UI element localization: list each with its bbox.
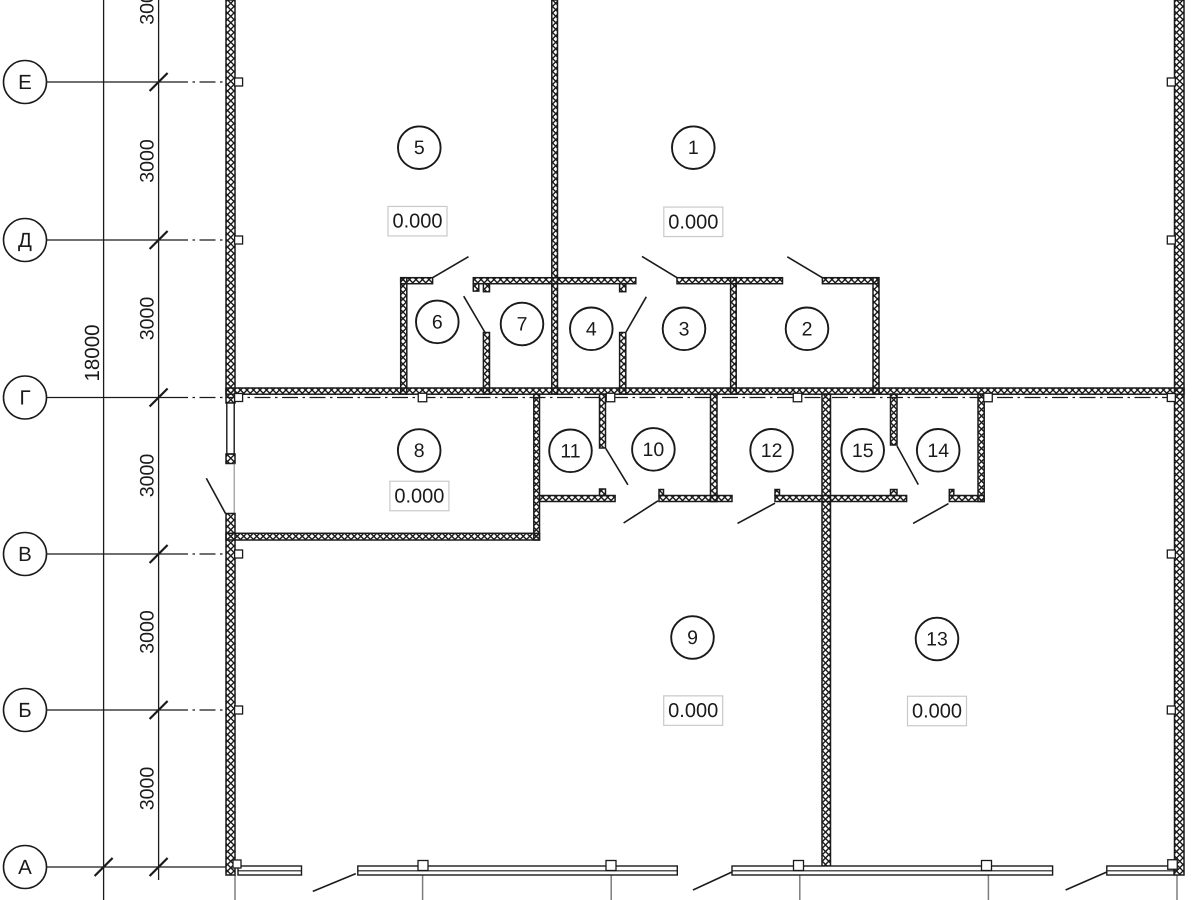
svg-text:9: 9 <box>687 627 698 649</box>
svg-text:14: 14 <box>927 440 949 462</box>
svg-text:3000: 3000 <box>137 610 159 654</box>
svg-text:0.000: 0.000 <box>392 211 442 233</box>
svg-text:18000: 18000 <box>81 324 104 381</box>
svg-text:3000: 3000 <box>137 297 159 341</box>
svg-text:5: 5 <box>414 137 425 159</box>
svg-text:4: 4 <box>586 318 597 340</box>
svg-text:6: 6 <box>432 311 443 333</box>
svg-text:2: 2 <box>802 318 813 340</box>
svg-text:11: 11 <box>560 440 580 462</box>
svg-text:А: А <box>18 856 32 879</box>
svg-text:В: В <box>18 543 32 566</box>
svg-text:3000: 3000 <box>137 454 159 498</box>
svg-text:0.000: 0.000 <box>394 486 444 508</box>
svg-text:3000: 3000 <box>137 139 159 183</box>
svg-text:0.000: 0.000 <box>912 701 962 723</box>
svg-text:15: 15 <box>852 440 874 462</box>
svg-text:Д: Д <box>18 229 32 252</box>
svg-text:Г: Г <box>19 387 30 410</box>
svg-text:0.000: 0.000 <box>668 700 718 722</box>
svg-text:3000: 3000 <box>137 767 159 811</box>
svg-text:0.000: 0.000 <box>668 211 718 233</box>
svg-text:13: 13 <box>926 629 948 651</box>
svg-text:Б: Б <box>18 699 31 722</box>
svg-text:8: 8 <box>414 440 425 462</box>
svg-text:Е: Е <box>18 71 32 94</box>
svg-text:3000: 3000 <box>137 0 159 25</box>
svg-text:10: 10 <box>643 439 665 461</box>
svg-text:3: 3 <box>679 318 690 340</box>
svg-text:12: 12 <box>761 440 783 462</box>
svg-text:7: 7 <box>517 314 528 336</box>
svg-text:1: 1 <box>688 137 699 159</box>
